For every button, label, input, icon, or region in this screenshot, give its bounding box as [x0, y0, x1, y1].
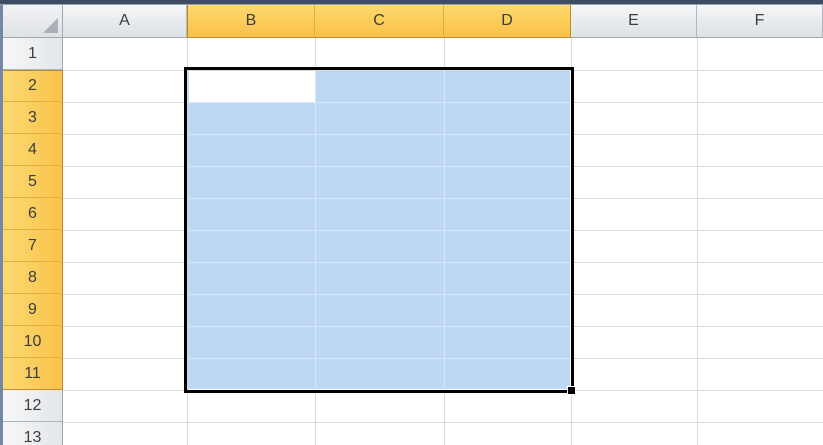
- cell-F8[interactable]: [697, 262, 823, 294]
- fill-handle[interactable]: [567, 386, 576, 395]
- cell-A5[interactable]: [63, 166, 187, 198]
- cell-E7[interactable]: [571, 230, 697, 262]
- row-header-13[interactable]: 13: [3, 422, 63, 445]
- cell-F6[interactable]: [697, 198, 823, 230]
- column-header-F[interactable]: F: [697, 5, 823, 38]
- cell-A8[interactable]: [63, 262, 187, 294]
- cell-B12[interactable]: [187, 390, 315, 422]
- cell-A3[interactable]: [63, 102, 187, 134]
- cell-F11[interactable]: [697, 358, 823, 390]
- cell-F12[interactable]: [697, 390, 823, 422]
- row-header-11[interactable]: 11: [3, 358, 63, 390]
- cell-F5[interactable]: [697, 166, 823, 198]
- spreadsheet-grid: ABCDEF12345678910111213: [0, 0, 823, 445]
- cell-D12[interactable]: [444, 390, 571, 422]
- row-header-12[interactable]: 12: [3, 390, 63, 422]
- cell-A4[interactable]: [63, 134, 187, 166]
- cell-F2[interactable]: [697, 70, 823, 102]
- cell-F7[interactable]: [697, 230, 823, 262]
- column-header-E[interactable]: E: [571, 5, 697, 38]
- select-all-triangle-icon: [43, 18, 58, 33]
- cell-E5[interactable]: [571, 166, 697, 198]
- cell-A7[interactable]: [63, 230, 187, 262]
- cell-E2[interactable]: [571, 70, 697, 102]
- cell-E4[interactable]: [571, 134, 697, 166]
- cell-E3[interactable]: [571, 102, 697, 134]
- cell-E13[interactable]: [571, 422, 697, 445]
- cell-A1[interactable]: [63, 38, 187, 70]
- cell-D13[interactable]: [444, 422, 571, 445]
- cell-F1[interactable]: [697, 38, 823, 70]
- column-header-B[interactable]: B: [187, 5, 315, 38]
- cell-A12[interactable]: [63, 390, 187, 422]
- selection-gridline: [188, 262, 570, 263]
- selection-gridline: [188, 358, 570, 359]
- cell-A9[interactable]: [63, 294, 187, 326]
- cell-C12[interactable]: [315, 390, 444, 422]
- column-header-A[interactable]: A: [63, 5, 187, 38]
- selection-gridline: [188, 326, 570, 327]
- row-header-3[interactable]: 3: [3, 102, 63, 134]
- cell-E10[interactable]: [571, 326, 697, 358]
- column-header-C[interactable]: C: [315, 5, 444, 38]
- cell-A6[interactable]: [63, 198, 187, 230]
- cell-A11[interactable]: [63, 358, 187, 390]
- selection-gridline: [188, 102, 570, 103]
- row-header-4[interactable]: 4: [3, 134, 63, 166]
- cell-C1[interactable]: [315, 38, 444, 70]
- column-header-D[interactable]: D: [444, 5, 571, 38]
- selection-gridline: [188, 294, 570, 295]
- cell-A2[interactable]: [63, 70, 187, 102]
- row-header-1[interactable]: 1: [3, 38, 63, 70]
- cell-F3[interactable]: [697, 102, 823, 134]
- cell-C13[interactable]: [315, 422, 444, 445]
- cell-F9[interactable]: [697, 294, 823, 326]
- row-header-2[interactable]: 2: [3, 70, 63, 102]
- row-header-8[interactable]: 8: [3, 262, 63, 294]
- cell-F13[interactable]: [697, 422, 823, 445]
- cell-E9[interactable]: [571, 294, 697, 326]
- cell-E8[interactable]: [571, 262, 697, 294]
- row-header-6[interactable]: 6: [3, 198, 63, 230]
- selection-gridline: [188, 230, 570, 231]
- row-header-9[interactable]: 9: [3, 294, 63, 326]
- cell-A10[interactable]: [63, 326, 187, 358]
- cell-F4[interactable]: [697, 134, 823, 166]
- row-header-10[interactable]: 10: [3, 326, 63, 358]
- cell-B1[interactable]: [187, 38, 315, 70]
- cell-B13[interactable]: [187, 422, 315, 445]
- select-all-button[interactable]: [3, 5, 63, 38]
- active-cell-B2[interactable]: [189, 71, 315, 102]
- row-header-5[interactable]: 5: [3, 166, 63, 198]
- selection-gridline: [188, 134, 570, 135]
- selection-gridline: [188, 166, 570, 167]
- cell-D1[interactable]: [444, 38, 571, 70]
- cell-E12[interactable]: [571, 390, 697, 422]
- cell-F10[interactable]: [697, 326, 823, 358]
- cell-E6[interactable]: [571, 198, 697, 230]
- cell-A13[interactable]: [63, 422, 187, 445]
- selection-gridline: [188, 198, 570, 199]
- cell-E11[interactable]: [571, 358, 697, 390]
- cell-E1[interactable]: [571, 38, 697, 70]
- row-header-7[interactable]: 7: [3, 230, 63, 262]
